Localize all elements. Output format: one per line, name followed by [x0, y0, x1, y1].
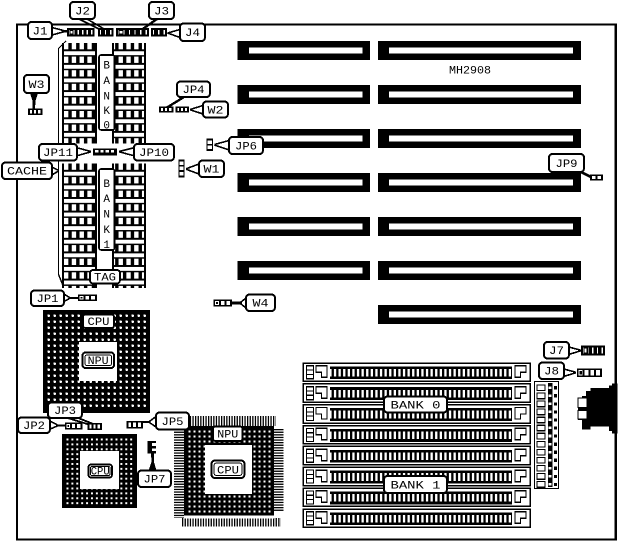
- svg-text:CPU: CPU: [91, 467, 110, 479]
- svg-text:A: A: [103, 194, 110, 206]
- svg-text:JP9: JP9: [556, 159, 578, 171]
- svg-text:J7: J7: [549, 346, 564, 358]
- svg-text:TAG: TAG: [94, 273, 116, 285]
- svg-text:J2: J2: [75, 6, 90, 18]
- svg-text:1: 1: [103, 240, 110, 252]
- svg-text:0: 0: [103, 121, 110, 133]
- svg-text:JP6: JP6: [235, 141, 257, 153]
- svg-text:BANK 0: BANK 0: [391, 400, 441, 412]
- svg-text:CPU: CPU: [88, 317, 110, 329]
- svg-text:W1: W1: [204, 165, 220, 177]
- svg-text:JP3: JP3: [54, 406, 76, 418]
- svg-text:JP1: JP1: [37, 294, 59, 306]
- svg-text:J3: J3: [154, 6, 169, 18]
- svg-text:B: B: [103, 61, 110, 73]
- svg-text:J1: J1: [33, 26, 48, 38]
- svg-text:N: N: [103, 210, 110, 222]
- svg-text:W4: W4: [253, 299, 269, 311]
- svg-text:JP2: JP2: [23, 421, 45, 433]
- svg-text:W2: W2: [208, 105, 224, 117]
- svg-text:JP5: JP5: [162, 417, 184, 429]
- svg-text:NPU: NPU: [217, 430, 238, 442]
- svg-text:N: N: [103, 92, 110, 104]
- svg-text:J8: J8: [544, 367, 559, 379]
- svg-text:B: B: [103, 179, 110, 191]
- svg-text:CACHE: CACHE: [7, 167, 47, 179]
- svg-text:W3: W3: [29, 80, 45, 92]
- svg-text:A: A: [103, 76, 110, 88]
- svg-text:JP7: JP7: [144, 475, 166, 487]
- svg-text:BANK 1: BANK 1: [391, 480, 441, 492]
- svg-text:JP10: JP10: [139, 148, 169, 160]
- svg-text:K: K: [103, 225, 110, 237]
- svg-text:CPU: CPU: [217, 466, 239, 478]
- svg-text:MH2908: MH2908: [449, 66, 491, 78]
- svg-text:NPU: NPU: [88, 356, 109, 368]
- svg-text:JP11: JP11: [43, 148, 73, 160]
- svg-text:J4: J4: [185, 28, 200, 40]
- svg-text:K: K: [103, 106, 110, 118]
- svg-text:JP4: JP4: [183, 85, 205, 97]
